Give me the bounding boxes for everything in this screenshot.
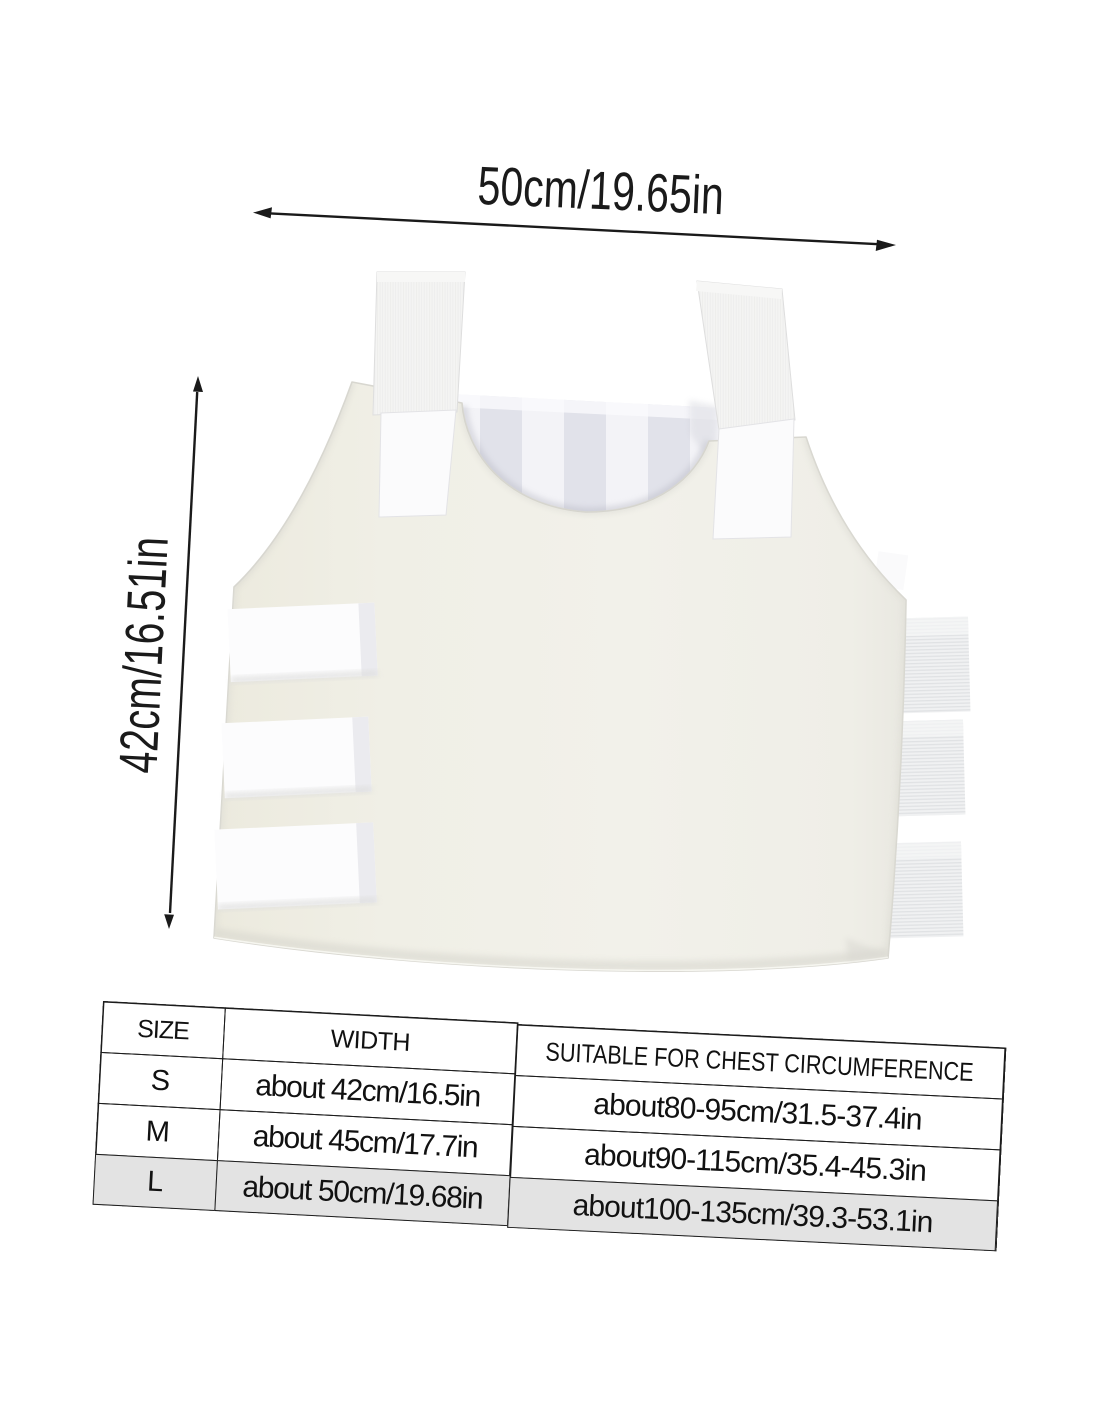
svg-text:50cm/19.65in: 50cm/19.65in — [476, 157, 725, 227]
svg-text:42cm/16.51in: 42cm/16.51in — [108, 535, 180, 774]
